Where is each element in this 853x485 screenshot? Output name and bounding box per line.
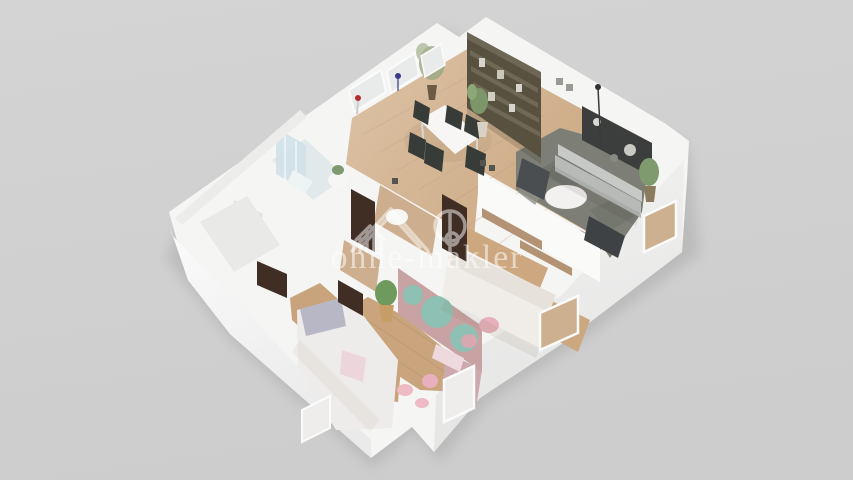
svg-text:ohne-makler: ohne-makler bbox=[331, 239, 523, 276]
